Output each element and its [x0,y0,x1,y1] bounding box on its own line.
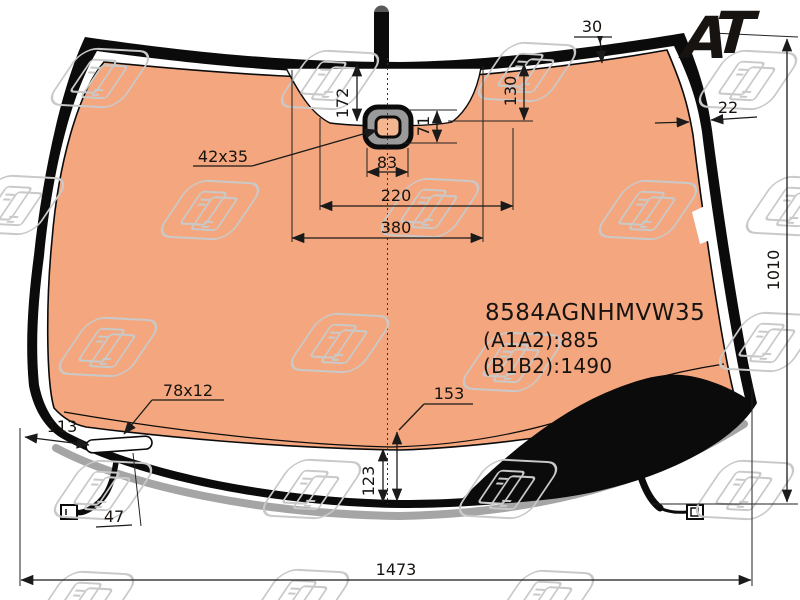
antenna-mast [374,6,389,63]
dim-bracket-size-label: 42x35 [198,147,248,166]
dim-83-label: 83 [377,153,397,172]
diagram-canvas: 30 22 172 130 71 83 220 380 42x35 1010 1… [0,0,800,600]
dim-113-label: 113 [47,417,78,436]
part-dim-a: (A1A2):885 [483,328,599,352]
dim-pad-size-label: 78x12 [163,381,213,400]
right-wire [641,477,703,519]
dim-47-label: 47 [104,507,124,526]
dim-153-label: 153 [434,384,465,403]
part-dim-b: (B1B2):1490 [483,354,612,378]
windshield-glass-art [27,6,757,520]
dim-123-label: 123 [359,466,378,497]
dim-height-label: 1010 [764,250,783,291]
brand-logo: T A [674,0,763,72]
dim-380-label: 380 [381,218,412,237]
dim-172-label: 172 [333,88,352,119]
dim-side-band-label: 22 [718,98,738,117]
part-number: 8584AGNHMVW35 [485,300,705,326]
dim-width-label: 1473 [376,560,417,579]
dim-220-label: 220 [381,186,412,205]
dim-top-band-label: 30 [582,17,602,36]
dim-130-label: 130 [501,76,520,107]
windshield-diagram: 30 22 172 130 71 83 220 380 42x35 1010 1… [0,0,800,600]
dim-71-label: 71 [414,116,433,136]
